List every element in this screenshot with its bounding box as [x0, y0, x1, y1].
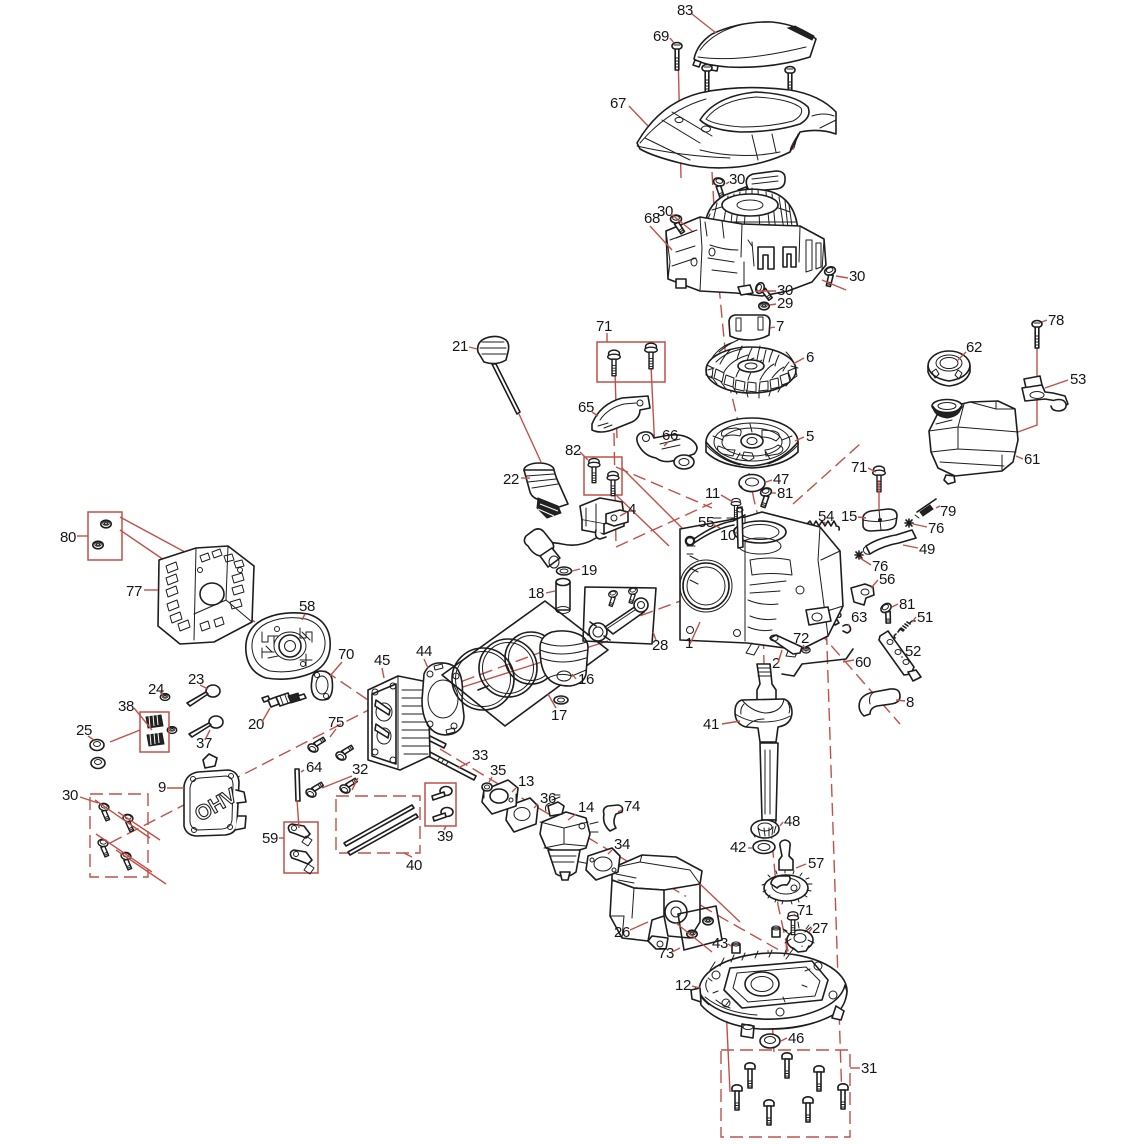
- svg-text:10: 10: [720, 527, 736, 544]
- svg-text:57: 57: [808, 855, 824, 872]
- svg-text:17: 17: [551, 707, 567, 724]
- svg-text:30: 30: [62, 787, 78, 804]
- svg-text:34: 34: [614, 836, 630, 853]
- svg-text:36: 36: [540, 790, 556, 807]
- svg-text:67: 67: [610, 95, 626, 112]
- svg-text:21: 21: [452, 338, 468, 355]
- svg-text:61: 61: [1024, 451, 1040, 468]
- svg-text:27: 27: [812, 920, 828, 937]
- svg-text:13: 13: [518, 773, 534, 790]
- svg-text:72: 72: [793, 630, 809, 647]
- svg-text:42: 42: [730, 839, 746, 856]
- svg-text:83: 83: [677, 2, 693, 19]
- svg-text:29: 29: [777, 295, 793, 312]
- svg-text:62: 62: [966, 339, 982, 356]
- svg-text:68: 68: [644, 210, 660, 227]
- svg-text:35: 35: [490, 762, 506, 779]
- svg-text:9: 9: [158, 779, 166, 796]
- svg-text:33: 33: [472, 747, 488, 764]
- svg-text:12: 12: [675, 977, 691, 994]
- svg-text:14: 14: [578, 799, 594, 816]
- svg-text:56: 56: [879, 571, 895, 588]
- svg-text:31: 31: [861, 1060, 877, 1077]
- svg-text:18: 18: [528, 585, 544, 602]
- svg-text:75: 75: [328, 714, 344, 731]
- svg-text:24: 24: [148, 681, 164, 698]
- svg-text:81: 81: [777, 485, 793, 502]
- svg-text:11: 11: [705, 485, 720, 502]
- svg-text:48: 48: [784, 813, 800, 830]
- svg-text:7: 7: [776, 318, 784, 335]
- svg-text:6: 6: [806, 349, 814, 366]
- svg-text:54: 54: [818, 508, 834, 525]
- svg-text:40: 40: [406, 857, 422, 874]
- svg-text:60: 60: [855, 654, 871, 671]
- svg-text:55: 55: [698, 514, 714, 531]
- svg-text:28: 28: [652, 637, 668, 654]
- svg-text:58: 58: [299, 598, 315, 615]
- svg-text:43: 43: [712, 935, 728, 952]
- svg-text:19: 19: [581, 562, 597, 579]
- svg-text:70: 70: [338, 646, 354, 663]
- svg-text:64: 64: [306, 759, 322, 776]
- svg-text:69: 69: [653, 28, 669, 45]
- svg-text:46: 46: [788, 1030, 804, 1047]
- svg-text:20: 20: [248, 716, 264, 733]
- svg-text:73: 73: [658, 945, 674, 962]
- svg-text:16: 16: [578, 671, 594, 688]
- svg-text:44: 44: [416, 643, 432, 660]
- svg-text:22: 22: [503, 471, 519, 488]
- svg-text:78: 78: [1048, 312, 1064, 329]
- svg-text:71: 71: [797, 902, 813, 919]
- svg-text:8: 8: [906, 694, 914, 711]
- svg-text:5: 5: [806, 428, 814, 445]
- svg-text:39: 39: [437, 828, 453, 845]
- svg-text:52: 52: [905, 643, 921, 660]
- svg-text:37: 37: [196, 735, 212, 752]
- svg-text:79: 79: [940, 503, 956, 520]
- svg-text:2: 2: [772, 655, 780, 672]
- svg-text:63: 63: [851, 609, 867, 626]
- svg-text:59: 59: [262, 830, 278, 847]
- svg-text:30: 30: [849, 268, 865, 285]
- svg-text:71: 71: [851, 459, 867, 476]
- svg-text:77: 77: [126, 583, 142, 600]
- svg-text:51: 51: [917, 609, 933, 626]
- svg-text:49: 49: [919, 541, 935, 558]
- svg-text:66: 66: [662, 427, 678, 444]
- svg-text:74: 74: [624, 798, 640, 815]
- svg-text:15: 15: [841, 508, 857, 525]
- svg-text:38: 38: [118, 698, 134, 715]
- svg-text:81: 81: [899, 596, 915, 613]
- svg-text:41: 41: [703, 716, 719, 733]
- svg-text:26: 26: [614, 924, 630, 941]
- svg-text:80: 80: [60, 529, 76, 546]
- svg-text:53: 53: [1070, 371, 1086, 388]
- svg-text:82: 82: [565, 442, 581, 459]
- svg-text:65: 65: [578, 399, 594, 416]
- svg-text:4: 4: [628, 501, 636, 518]
- svg-text:30: 30: [729, 171, 745, 188]
- svg-text:32: 32: [352, 761, 368, 778]
- svg-text:45: 45: [374, 652, 390, 669]
- svg-text:1: 1: [685, 635, 693, 652]
- svg-text:71: 71: [596, 318, 612, 335]
- svg-text:76: 76: [928, 520, 944, 537]
